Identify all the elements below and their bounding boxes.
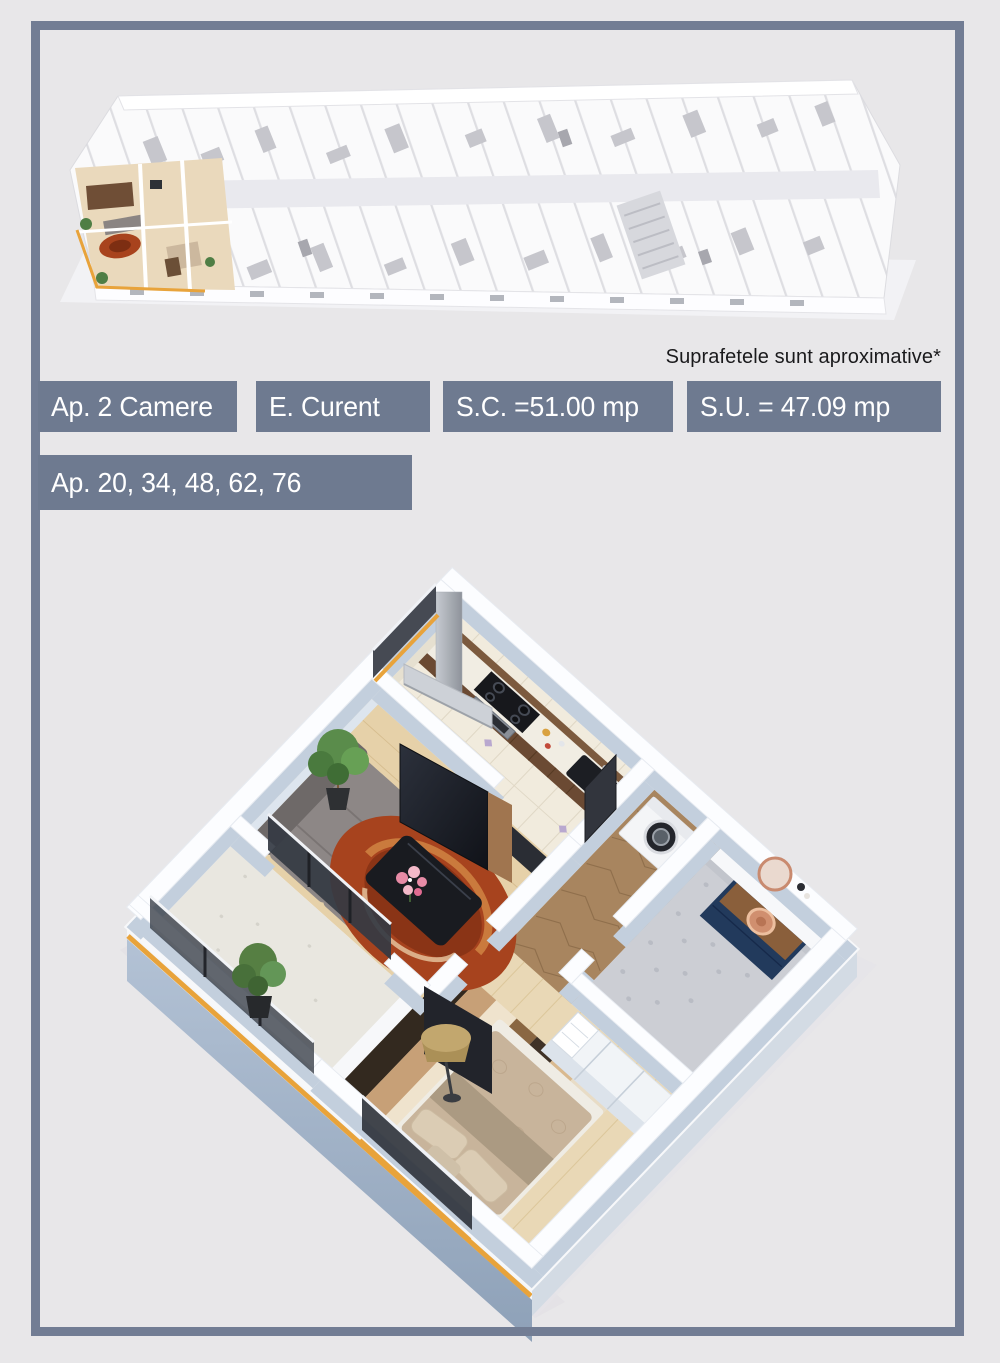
badge-usable-surface-label: S.U. = 47.09 mp bbox=[700, 391, 890, 423]
badge-apartment-type-label: Ap. 2 Camere bbox=[51, 391, 213, 423]
disclaimer-text: Suprafetele sunt aproximative* bbox=[666, 346, 941, 369]
badge-apartment-numbers-label: Ap. 20, 34, 48, 62, 76 bbox=[51, 467, 301, 499]
flyer-art bbox=[0, 0, 1000, 1363]
apartment-flyer: Suprafetele sunt aproximative* Ap. 2 Cam… bbox=[0, 0, 1000, 1363]
highlighted-unit bbox=[75, 158, 235, 291]
badge-usable-surface: S.U. = 47.09 mp bbox=[687, 381, 941, 432]
mini-kitchen bbox=[86, 182, 134, 210]
badge-utilities: E. Curent bbox=[256, 381, 430, 432]
badge-utilities-label: E. Curent bbox=[269, 391, 380, 423]
badge-built-surface: S.C. =51.00 mp bbox=[443, 381, 673, 432]
badge-apartment-numbers: Ap. 20, 34, 48, 62, 76 bbox=[38, 455, 412, 510]
apartment-plan-render bbox=[120, 568, 877, 1342]
badge-apartment-type: Ap. 2 Camere bbox=[38, 381, 237, 432]
building-overview-render bbox=[60, 80, 916, 320]
badge-built-surface-label: S.C. =51.00 mp bbox=[456, 391, 639, 423]
